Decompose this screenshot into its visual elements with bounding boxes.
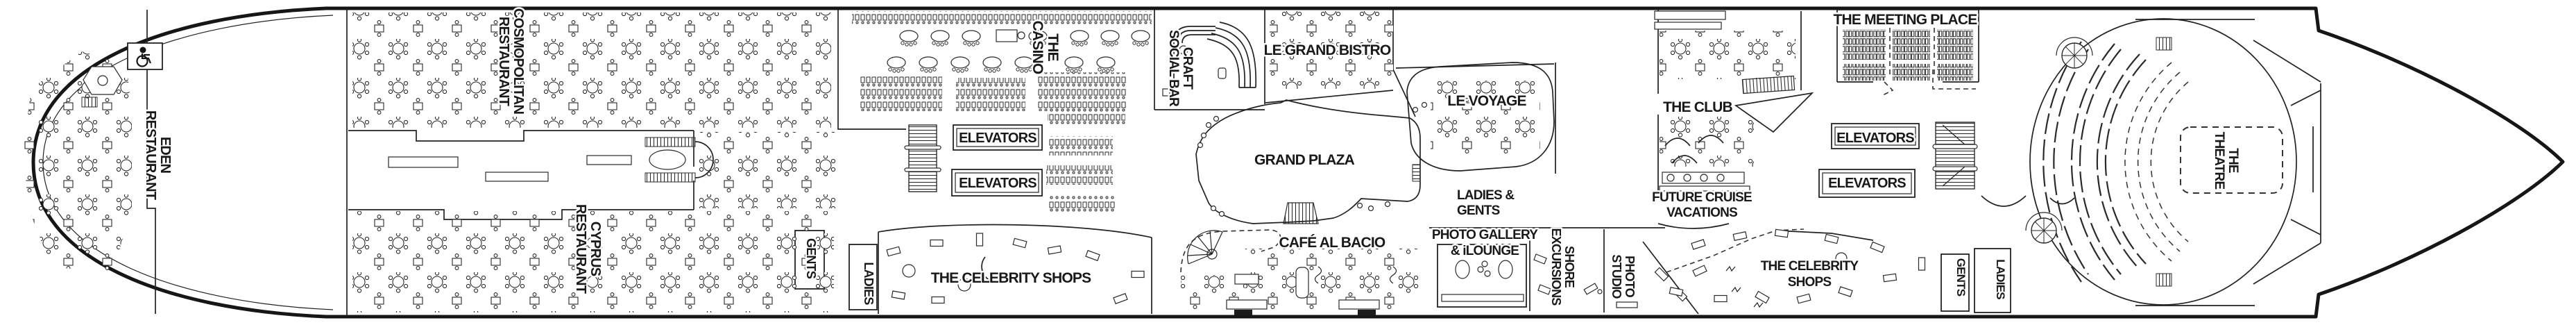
label-cafe-al-bacio: CAFÉ AL BACIO: [1279, 235, 1385, 251]
stairs-forward: [1933, 122, 1977, 189]
future-cruise-desk: [1658, 224, 1729, 228]
label-casino-line1: THE: [1045, 33, 1061, 61]
craft-social-staircase: [1207, 22, 1256, 87]
theatre: [2026, 19, 2321, 306]
roulette-table: [996, 30, 1017, 42]
label-le-voyage: LE VOYAGE: [1447, 93, 1526, 109]
deck-plan: EDEN RESTAURANT COSMOPOLITAN RESTAURANT …: [0, 0, 2576, 325]
label-eden-line2: RESTAURANT: [143, 110, 158, 200]
label-ladies-midship: LADIES: [862, 262, 876, 305]
label-future-cruise-line2: VACATIONS: [1666, 206, 1737, 220]
label-cyprus-line2: RESTAURANT: [573, 204, 588, 294]
label-celebrity-shops-fwd-line2: SHOPS: [1788, 275, 1832, 290]
label-elevators-forward-lower: ELEVATORS: [1828, 176, 1906, 191]
label-shore-excursions-line1: SHORE: [1562, 246, 1576, 288]
theatre-spiral-stair-upper: [2056, 37, 2092, 68]
entrance-marker: [1234, 310, 1252, 315]
label-grand-plaza: GRAND PLAZA: [1254, 152, 1355, 168]
entrance-marker: [1358, 310, 1376, 315]
cosmopolitan-buffet-counters: [389, 156, 631, 181]
label-elevators-midship-lower: ELEVATORS: [959, 176, 1037, 191]
label-ladies-gents-line1: LADIES &: [1457, 188, 1515, 203]
label-photo-gallery-line1: PHOTO GALLERY: [1432, 228, 1538, 242]
label-craft-social-line1: CRAFT: [1180, 47, 1195, 90]
label-theatre-line2: THEATRE: [2212, 132, 2226, 190]
label-celebrity-shops-midship: THE CELEBRITY SHOPS: [931, 270, 1091, 286]
label-cosmopolitan-line1: COSMOPOLITAN: [511, 8, 526, 115]
label-theatre-line1: THE: [2226, 148, 2240, 173]
label-future-cruise-line1: FUTURE CRUISE: [1652, 190, 1752, 205]
label-elevators-forward-upper: ELEVATORS: [1836, 131, 1914, 146]
stairs-midship: [905, 125, 941, 192]
label-photo-studio-line2: STUDIO: [1610, 254, 1623, 299]
label-the-club: THE CLUB: [1663, 99, 1732, 115]
label-elevators-midship-upper: ELEVATORS: [959, 131, 1037, 146]
grand-plaza-side-steps: [1413, 165, 1420, 181]
label-cyprus-line1: CYPRUS: [588, 222, 603, 276]
celebrity-shops-midship-fixtures: [887, 233, 1144, 303]
theatre-spiral-stair-lower: [2026, 212, 2062, 243]
label-ladies-forward: LADIES: [1994, 259, 2007, 299]
label-cosmopolitan-line2: RESTAURANT: [496, 17, 511, 106]
label-meeting-place: THE MEETING PLACE: [1834, 12, 1978, 28]
label-craft-social-line2: SOCIAL BAR: [1166, 30, 1181, 107]
label-le-grand-bistro: LE GRAND BISTRO: [1264, 42, 1391, 58]
label-celebrity-shops-fwd-line1: THE CELEBRITY: [1761, 259, 1859, 274]
label-photo-studio-line1: PHOTO: [1623, 256, 1637, 297]
grand-plaza-steps: [1283, 203, 1318, 224]
label-shore-excursions-line2: EXCURSIONS: [1549, 228, 1563, 306]
label-casino-line2: CASINO: [1030, 21, 1046, 74]
meeting-place-seating: [1843, 29, 1973, 81]
label-ladies-gents-line2: GENTS: [1457, 203, 1500, 218]
label-gents-forward: GENTS: [1954, 258, 1968, 297]
label-photo-gallery-line2: & iLOUNGE: [1451, 244, 1519, 258]
label-gents-midship: GENTS: [804, 238, 818, 279]
label-eden-line1: EDEN: [157, 137, 173, 174]
